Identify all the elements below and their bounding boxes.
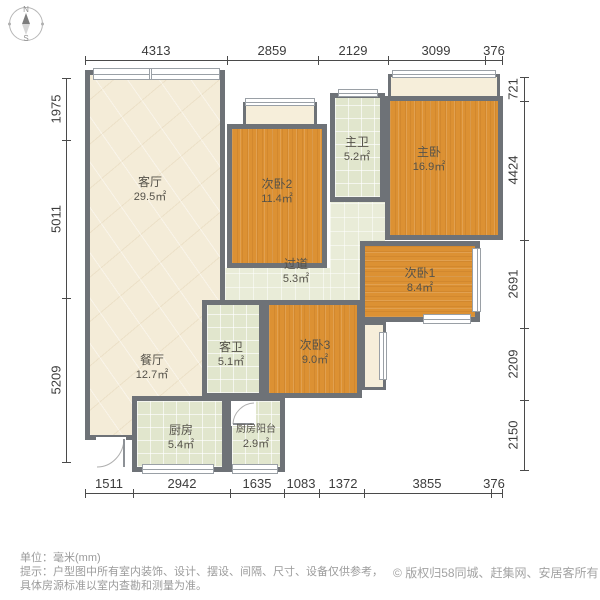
tag-bedroom2: 次卧2 11.4㎡ bbox=[261, 177, 293, 207]
dim-right-4: 2209 bbox=[506, 350, 521, 379]
room-area: 5.2㎡ bbox=[344, 150, 370, 165]
dim-line-bottom bbox=[85, 493, 503, 494]
entry-door bbox=[96, 437, 126, 469]
dim-bottom-7: 376 bbox=[483, 476, 505, 491]
room-label: 次卧3 bbox=[300, 338, 331, 353]
dim-bottom-4: 1083 bbox=[287, 476, 316, 491]
master-bath-window bbox=[338, 89, 378, 97]
room-area: 8.4㎡ bbox=[405, 281, 436, 296]
dim-line-top bbox=[85, 60, 503, 61]
bedroom3-balcony-window bbox=[379, 332, 387, 380]
footer-tip-line2: 具体房源标准以室内查勘和测量为准。 bbox=[20, 577, 207, 593]
kitchen-balcony-window bbox=[232, 464, 278, 474]
compass-needle-icon bbox=[22, 13, 30, 24]
room-label: 餐厅 bbox=[136, 353, 168, 368]
kitchen-window bbox=[142, 464, 214, 474]
compass-needle-tail-icon bbox=[22, 24, 30, 35]
room-area: 16.9㎡ bbox=[413, 160, 445, 175]
room-label: 客卫 bbox=[218, 340, 244, 355]
bedroom1-right-window bbox=[472, 248, 481, 312]
room-area: 5.3㎡ bbox=[283, 272, 309, 287]
room-label: 过道 bbox=[283, 257, 309, 272]
dim-right-3: 2691 bbox=[506, 270, 521, 299]
copyright-text: 版权归58同城、赶集网、安居客所有 bbox=[405, 566, 598, 580]
tag-master-bath: 主卫 5.2㎡ bbox=[344, 135, 370, 165]
room-area: 12.7㎡ bbox=[136, 368, 168, 383]
bedroom1-bottom-window bbox=[423, 314, 471, 324]
room-area: 2.9㎡ bbox=[236, 437, 276, 452]
copyright-icon: © bbox=[393, 566, 402, 580]
compass-east-dot bbox=[41, 23, 44, 26]
dim-line-right bbox=[524, 77, 525, 470]
tag-bedroom1: 次卧1 8.4㎡ bbox=[405, 266, 436, 296]
dim-bottom-5: 1372 bbox=[329, 476, 358, 491]
tag-corridor: 过道 5.3㎡ bbox=[283, 257, 309, 287]
dim-top-1: 4313 bbox=[142, 43, 171, 58]
room-label: 主卧 bbox=[413, 145, 445, 160]
room-label: 厨房阳台 bbox=[236, 422, 276, 437]
dim-top-4: 3099 bbox=[422, 43, 451, 58]
dim-bottom-3: 1635 bbox=[243, 476, 272, 491]
room-area: 5.1㎡ bbox=[218, 355, 244, 370]
compass-south-label: S bbox=[23, 34, 28, 43]
dim-bottom-1: 1511 bbox=[95, 476, 123, 491]
tag-kitchen-balcony: 厨房阳台 2.9㎡ bbox=[236, 422, 276, 452]
room-area: 5.4㎡ bbox=[168, 438, 194, 453]
room-label: 次卧1 bbox=[405, 266, 436, 281]
living-top-window-mullion bbox=[149, 68, 152, 80]
dim-top-2: 2859 bbox=[258, 43, 287, 58]
dim-bottom-2: 2942 bbox=[168, 476, 197, 491]
dim-right-1: 721 bbox=[506, 78, 521, 100]
room-area: 11.4㎡ bbox=[261, 192, 293, 207]
bedroom2-bay-window bbox=[245, 98, 315, 106]
room-label: 厨房 bbox=[168, 423, 194, 438]
dim-top-5: 376 bbox=[483, 43, 505, 58]
dim-left-1: 1975 bbox=[49, 95, 64, 124]
living-top-window bbox=[93, 68, 220, 80]
dim-right-2: 4424 bbox=[506, 156, 521, 185]
dim-top-3: 2129 bbox=[339, 43, 368, 58]
tag-living-room: 客厅 29.5㎡ bbox=[134, 175, 166, 205]
room-area: 29.5㎡ bbox=[134, 190, 166, 205]
dim-line-left bbox=[66, 78, 67, 462]
room-label: 主卫 bbox=[344, 135, 370, 150]
room-label: 客厅 bbox=[134, 175, 166, 190]
room-area: 9.0㎡ bbox=[300, 353, 331, 368]
floorplan-canvas: N S bbox=[0, 0, 600, 600]
tag-guest-bath: 客卫 5.1㎡ bbox=[218, 340, 244, 370]
room-label: 次卧2 bbox=[261, 177, 293, 192]
tag-dining-room: 餐厅 12.7㎡ bbox=[136, 353, 168, 383]
master-bedroom-window bbox=[392, 70, 496, 78]
footer-copyright: © 版权归58同城、赶集网、安居客所有 bbox=[393, 564, 599, 581]
dim-bottom-6: 3855 bbox=[413, 476, 442, 491]
dim-right-5: 2150 bbox=[506, 421, 521, 450]
dim-left-3: 5209 bbox=[49, 366, 64, 395]
tag-kitchen: 厨房 5.4㎡ bbox=[168, 423, 194, 453]
compass-icon: N S bbox=[9, 7, 43, 41]
tag-master-bedroom: 主卧 16.9㎡ bbox=[413, 145, 445, 175]
tag-bedroom3: 次卧3 9.0㎡ bbox=[300, 338, 331, 368]
compass-west-dot bbox=[8, 23, 11, 26]
dim-left-2: 5011 bbox=[49, 205, 64, 233]
